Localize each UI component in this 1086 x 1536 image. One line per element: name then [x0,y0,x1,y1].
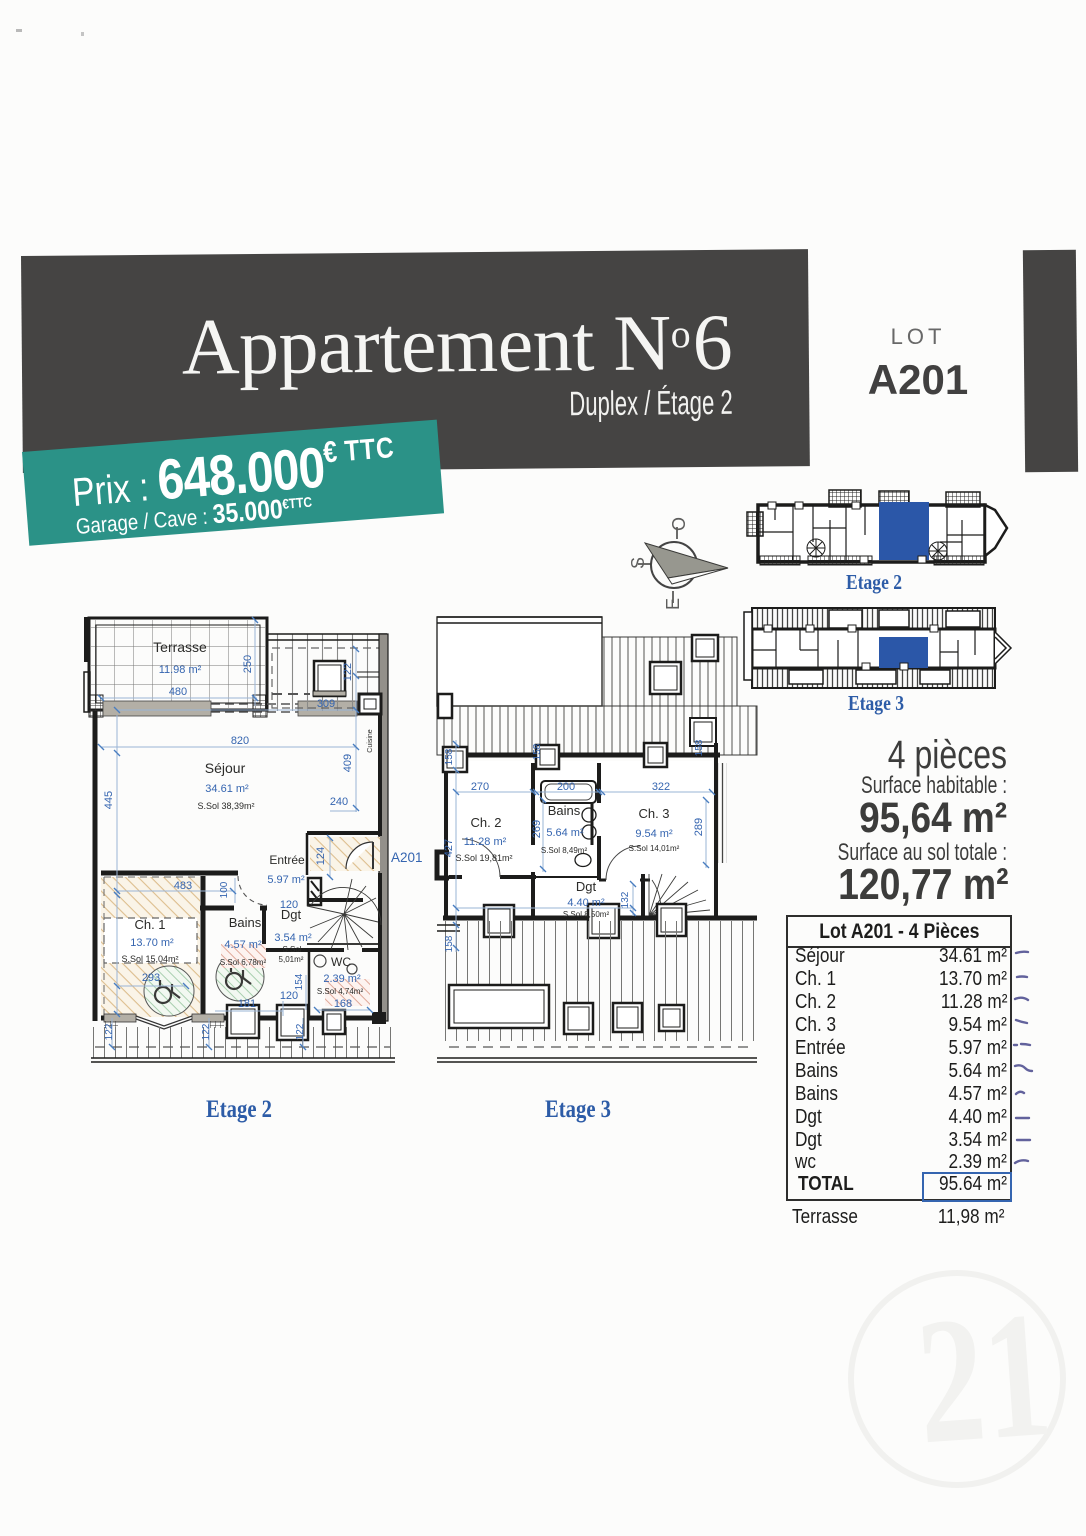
svg-text:293: 293 [142,972,160,984]
svg-text:S.Sol 15,04m²: S.Sol 15,04m² [121,954,178,964]
svg-text:322: 322 [652,781,670,793]
svg-text:3.54 m²: 3.54 m² [274,932,312,944]
svg-text:E: E [663,598,683,610]
svg-text:Entrée: Entrée [269,853,305,867]
svg-text:Terrasse: Terrasse [153,639,207,655]
svg-text:409: 409 [342,754,354,772]
svg-text:5.64 m²: 5.64 m² [546,827,584,839]
svg-text:200: 200 [557,781,575,793]
svg-text:158: 158 [444,748,455,765]
svg-text:S.Sol 4,74m²: S.Sol 4,74m² [317,987,364,996]
svg-text:289: 289 [693,818,705,836]
svg-text:820: 820 [231,735,249,747]
svg-text:Séjour: Séjour [205,760,246,776]
svg-text:269: 269 [531,820,543,838]
svg-text:132: 132 [620,891,631,908]
svg-text:427: 427 [443,839,455,857]
svg-text:122: 122 [104,1023,115,1040]
svg-text:122: 122 [342,663,354,681]
svg-text:270: 270 [471,781,489,793]
svg-text:250: 250 [242,655,254,673]
svg-text:Etage 2: Etage 2 [206,1096,272,1123]
svg-text:O: O [669,517,689,531]
svg-text:Bains: Bains [229,915,262,930]
svg-text:Cuisine: Cuisine [367,729,374,752]
svg-text:S.Sol 14,01m²: S.Sol 14,01m² [629,844,680,853]
svg-text:154: 154 [294,973,305,990]
svg-text:S.Sol 8,49m²: S.Sol 8,49m² [541,846,588,855]
svg-text:Ch. 2: Ch. 2 [470,815,501,830]
svg-text:5.97 m²: 5.97 m² [267,874,305,886]
svg-text:Etage 2: Etage 2 [846,570,902,594]
svg-text:S.Sol 8,50m²: S.Sol 8,50m² [563,910,610,919]
svg-text:120: 120 [280,990,298,1002]
svg-text:Ch. 1: Ch. 1 [134,917,165,932]
svg-text:168: 168 [334,998,352,1010]
svg-text:A201: A201 [391,850,423,865]
svg-text:122: 122 [295,1023,306,1040]
svg-text:Etage 3: Etage 3 [848,691,904,715]
svg-text:S.Sol 19,81m²: S.Sol 19,81m² [455,853,512,863]
svg-text:124: 124 [315,847,327,865]
svg-text:Ch. 3: Ch. 3 [638,806,669,821]
svg-text:181: 181 [238,998,256,1010]
svg-text:158: 158 [444,935,455,952]
svg-text:S.Sol 6,78m²: S.Sol 6,78m² [220,958,267,967]
svg-text:Etage 3: Etage 3 [545,1096,611,1123]
svg-text:S.Sol: S.Sol [282,945,301,954]
svg-text:4.40 m²: 4.40 m² [567,897,605,909]
svg-text:21: 21 [911,1274,1057,1482]
svg-text:WC: WC [331,955,351,969]
svg-text:240: 240 [330,796,348,808]
svg-text:34.61 m²: 34.61 m² [205,783,249,795]
svg-text:2.39 m²: 2.39 m² [323,973,361,985]
svg-text:9.54 m²: 9.54 m² [635,828,673,840]
svg-text:Dgt: Dgt [576,879,597,894]
svg-text:445: 445 [103,791,115,809]
svg-text:120: 120 [280,899,298,911]
svg-text:122: 122 [201,1023,212,1040]
svg-text:11.28 m²: 11.28 m² [464,836,507,848]
svg-text:100: 100 [219,881,230,898]
svg-text:Bains: Bains [548,803,581,818]
svg-text:309: 309 [317,698,335,710]
svg-text:13.70 m²: 13.70 m² [130,937,174,949]
svg-text:158: 158 [694,739,705,756]
svg-text:4.57 m²: 4.57 m² [224,939,262,951]
svg-text:S: S [628,557,648,569]
svg-text:480: 480 [169,686,187,698]
svg-text:5,01m²: 5,01m² [279,955,304,964]
svg-text:S.Sol 38,39m²: S.Sol 38,39m² [197,801,254,811]
svg-text:483: 483 [174,880,192,892]
svg-text:158: 158 [532,743,543,760]
svg-text:11.98 m²: 11.98 m² [159,664,202,676]
